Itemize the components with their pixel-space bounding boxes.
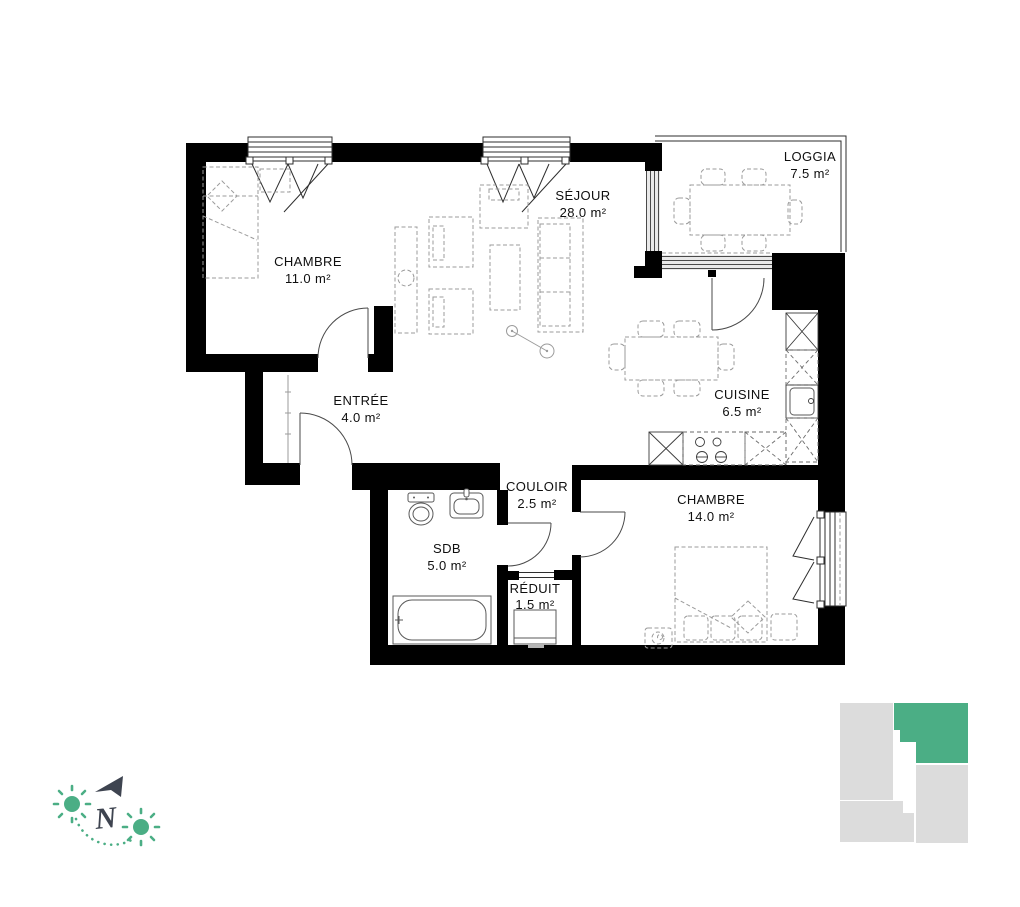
room-label-reduit: RÉDUIT — [510, 581, 561, 596]
room-label-chambre2: CHAMBRE — [677, 492, 745, 507]
sun-icon-east — [54, 786, 90, 822]
reduit-sliding-door-icon — [519, 573, 554, 578]
locator-block — [840, 703, 893, 800]
room-area-couloir: 2.5 m² — [517, 496, 557, 511]
room-labels: CHAMBRE 11.0 m² SÉJOUR 28.0 m² LOGGIA 7.… — [274, 149, 836, 612]
room-label-cuisine: CUISINE — [714, 387, 770, 402]
building-locator-map — [840, 703, 968, 843]
floor-plan-page: CHAMBRE 11.0 m² SÉJOUR 28.0 m² LOGGIA 7.… — [0, 0, 1020, 907]
locator-block — [840, 801, 914, 842]
window-icon-chambre2 — [793, 511, 846, 608]
room-area-sejour: 28.0 m² — [560, 205, 607, 220]
washing-machine-icon — [514, 610, 556, 648]
dining-table-icon — [609, 321, 734, 396]
loggia-glazing-icon — [646, 171, 772, 270]
room-label-sdb: SDB — [433, 541, 461, 556]
room-label-loggia: LOGGIA — [784, 149, 836, 164]
door-arc-chambre2 — [580, 512, 625, 557]
sejour-furniture-icons — [395, 185, 583, 358]
room-label-entree: ENTRÉE — [333, 393, 388, 408]
compass-north-arrow-icon — [95, 776, 123, 797]
sink-icon — [450, 489, 483, 518]
sun-icon-west — [123, 809, 159, 845]
door-arc-loggia — [712, 278, 764, 330]
compass-north-label: N — [92, 801, 119, 836]
locator-unit-highlighted — [894, 703, 968, 763]
entree-closet-line — [285, 375, 291, 463]
bathtub-icon — [393, 596, 491, 644]
room-label-sejour: SÉJOUR — [555, 188, 610, 203]
floor-plan-svg: CHAMBRE 11.0 m² SÉJOUR 28.0 m² LOGGIA 7.… — [0, 0, 1020, 907]
room-area-chambre1: 11.0 m² — [285, 271, 331, 286]
room-area-entree: 4.0 m² — [341, 410, 381, 425]
door-arc-chambre1 — [318, 308, 368, 358]
room-label-couloir: COULOIR — [506, 479, 568, 494]
compass: N — [54, 776, 159, 845]
window-icon-chambre1 — [246, 137, 332, 212]
room-area-reduit: 1.5 m² — [515, 597, 555, 612]
room-area-sdb: 5.0 m² — [427, 558, 467, 573]
room-area-loggia: 7.5 m² — [790, 166, 830, 181]
locator-block — [916, 765, 968, 843]
bed-icon-chambre2 — [645, 547, 797, 648]
room-area-cuisine: 6.5 m² — [722, 404, 762, 419]
loggia-table-icon — [674, 169, 802, 251]
door-arc-sdb — [508, 523, 551, 566]
toilet-icon — [408, 493, 434, 525]
room-area-chambre2: 14.0 m² — [688, 509, 735, 524]
room-label-chambre1: CHAMBRE — [274, 254, 342, 269]
